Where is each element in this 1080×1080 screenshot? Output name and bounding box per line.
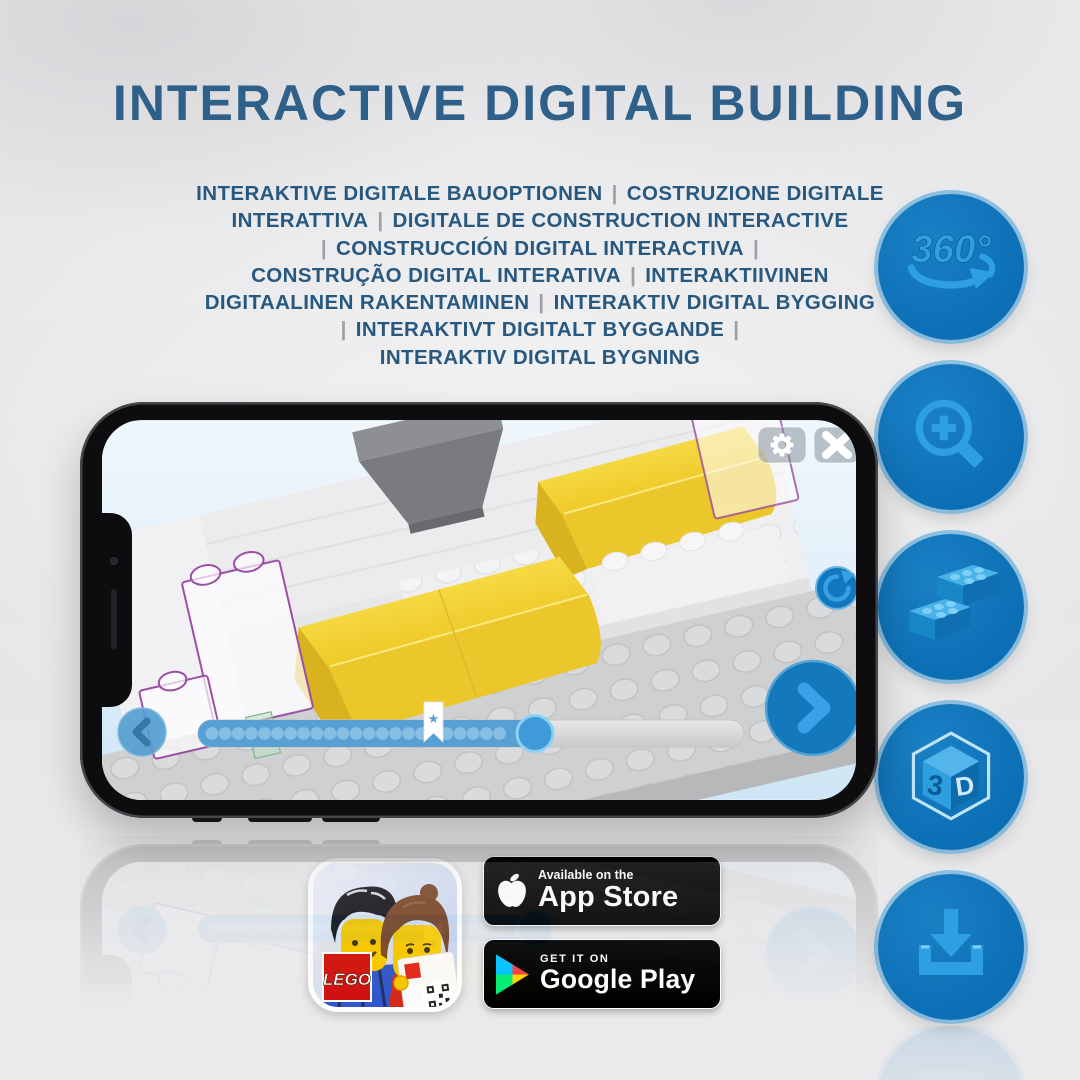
subtitle-line: |INTERAKTIVT DIGITALT BYGGANDE|: [145, 316, 935, 343]
phone-screen: ★: [102, 420, 856, 800]
model-viewport[interactable]: ★: [102, 420, 856, 800]
lego-logo: LEGO: [323, 953, 371, 1001]
pipe-separator: |: [538, 291, 544, 314]
front-camera: [110, 557, 118, 565]
pipe-separator: |: [612, 182, 618, 205]
download-icon: [878, 874, 1024, 1020]
feature-icon-column: 360°: [876, 194, 1026, 1020]
store-badges: Available on the App Store GET IT ON Goo…: [483, 856, 721, 1009]
subtitle-line: DIGITAALINEN RAKENTAMINEN|INTERAKTIV DIG…: [145, 289, 935, 316]
lego-app-icon[interactable]: LEGO: [308, 858, 462, 1012]
lego-logo-text: LEGO: [323, 970, 371, 989]
360-rotation-icon: 360°: [878, 194, 1024, 340]
progress-slider-handle[interactable]: [517, 716, 553, 752]
pipe-separator: |: [630, 264, 636, 287]
poster: INTERACTIVE DIGITAL BUILDING INTERAKTIVE…: [0, 0, 1080, 1080]
pipe-separator: |: [753, 237, 759, 260]
subtitle-line: INTERAKTIVE DIGITALE BAUOPTIONEN|COSTRUZ…: [145, 180, 935, 207]
pipe-separator: |: [341, 318, 347, 341]
rotate-reset-button[interactable]: [816, 567, 856, 609]
subtitle-line: INTERAKTIV DIGITAL BYGNING: [145, 344, 935, 371]
google-play-line2: Google Play: [540, 966, 695, 994]
progress-dots: [206, 727, 506, 740]
phone-frame: ★: [80, 402, 878, 818]
phone: ★: [80, 402, 878, 826]
front-brick: [909, 599, 971, 640]
apple-logo-icon: [496, 873, 527, 910]
subtitle-line: INTERATTIVA|DIGITALE DE CONSTRUCTION INT…: [145, 207, 935, 234]
zoom-in-icon: [878, 364, 1024, 510]
settings-button[interactable]: [758, 427, 806, 463]
3d-cube-icon: 3 D: [878, 704, 1024, 850]
bookmark-star-icon: ★: [428, 711, 440, 726]
page-title: INTERACTIVE DIGITAL BUILDING: [0, 74, 1080, 132]
pipe-separator: |: [733, 318, 739, 341]
app-store-line2: App Store: [538, 882, 678, 912]
app-store-badge[interactable]: Available on the App Store: [483, 856, 721, 926]
pipe-separator: |: [321, 237, 327, 260]
play-triangle-icon: [496, 954, 529, 995]
phone-notch: [102, 513, 132, 707]
earpiece-speaker: [111, 589, 117, 649]
subtitle-line: |CONSTRUCCIÓN DIGITAL INTERACTIVA|: [145, 235, 935, 262]
close-button[interactable]: [814, 427, 856, 463]
google-play-badge[interactable]: GET IT ON Google Play: [483, 939, 721, 1009]
pipe-separator: |: [377, 209, 383, 232]
next-step-button[interactable]: [766, 661, 856, 755]
subtitle-line: CONSTRUÇÃO DIGITAL INTERATIVA|INTERAKTII…: [145, 262, 935, 289]
360-label: 360°: [911, 228, 991, 271]
subtitle: INTERAKTIVE DIGITALE BAUOPTIONEN|COSTRUZ…: [145, 180, 935, 371]
previous-step-button[interactable]: [118, 708, 166, 756]
lego-bricks-icon: [878, 534, 1024, 680]
